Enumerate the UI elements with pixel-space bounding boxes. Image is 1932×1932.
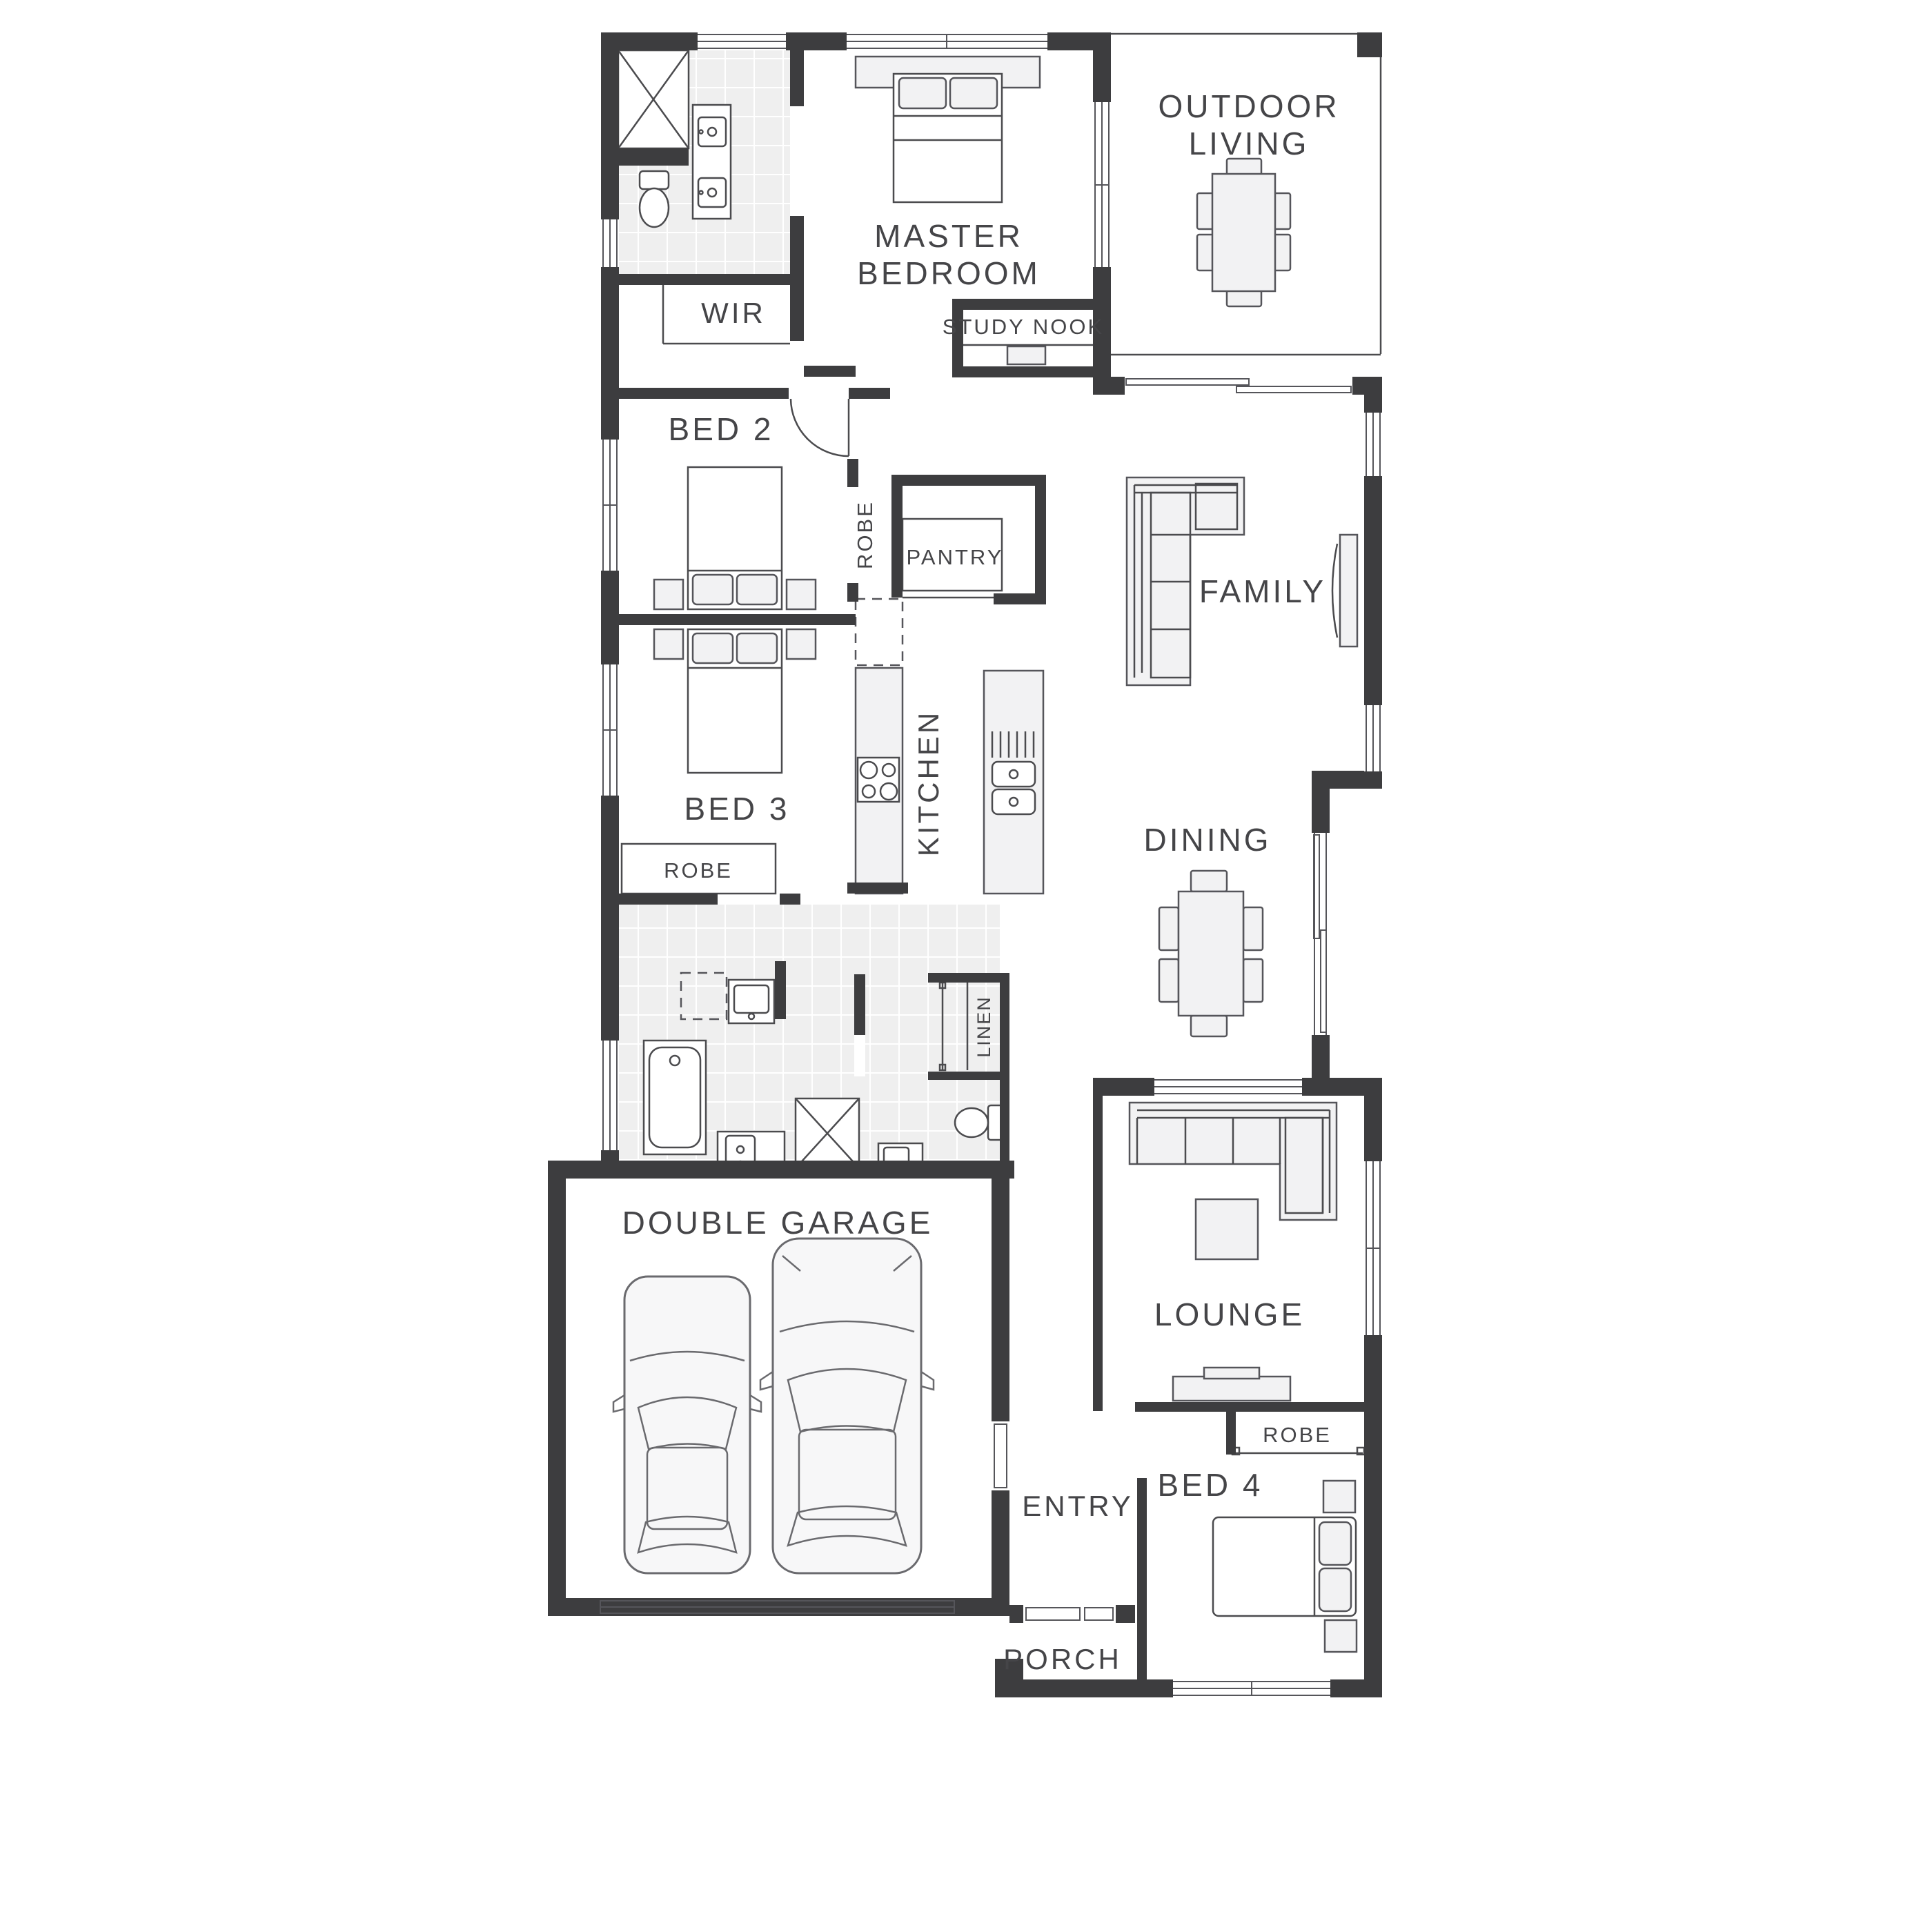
window (1173, 1679, 1330, 1697)
wall-segment (804, 366, 856, 377)
wall-segment (854, 974, 865, 1035)
sliding-door (1312, 833, 1330, 1035)
room-label-lounge: LOUNGE (1154, 1297, 1305, 1332)
wall-segment (952, 299, 1093, 310)
wall-segment (1226, 1412, 1236, 1455)
wall-segment (619, 148, 689, 166)
wall-segment (891, 475, 1046, 486)
bathroom-shower-icon (796, 1098, 859, 1168)
toilet-icon (640, 171, 669, 227)
wall-segment (548, 1161, 1014, 1179)
room-label-robe-bed3: ROBE (664, 858, 733, 883)
window (1093, 102, 1111, 267)
room-label-bed3: BED 3 (684, 791, 790, 827)
window (601, 219, 619, 267)
sliding-door (1125, 377, 1352, 395)
bed4-bed-icon (1213, 1481, 1357, 1652)
bed2-bed-icon (654, 467, 816, 609)
room-label-bed4: BED 4 (1158, 1467, 1263, 1503)
wall-segment (891, 475, 903, 598)
room-label-kitchen: KITCHEN (912, 710, 945, 856)
room-label-family: FAMILY (1199, 573, 1326, 609)
window (1364, 413, 1382, 476)
wall-segment (1357, 32, 1382, 57)
island-bench-sink-icon (984, 671, 1043, 894)
car-icon (613, 1276, 761, 1573)
wall-segment (601, 614, 856, 625)
room-label-wir: WIR (701, 297, 766, 329)
window (601, 664, 619, 796)
window (601, 1041, 619, 1150)
room-label-robe-bed2: ROBE (853, 500, 877, 569)
floor-plan-drawing: OUTDOOR LIVING MASTER BEDROOM WIR STUDY … (0, 0, 1932, 1932)
garage-internal-door (992, 1421, 1009, 1490)
room-label-entry: ENTRY (1022, 1490, 1134, 1522)
room-label-linen: LINEN (974, 996, 994, 1058)
wall-segment (1137, 1478, 1147, 1679)
wall-segment (847, 883, 908, 894)
wall-segment (849, 388, 890, 399)
shower-icon (618, 50, 689, 148)
door-opening (789, 388, 849, 399)
wall-segment (928, 1072, 1004, 1080)
study-nook-desk-icon (963, 345, 1093, 364)
window (601, 440, 619, 571)
window (1364, 1161, 1382, 1335)
lounge-ottoman-icon (1196, 1199, 1258, 1259)
room-label-double-garage: DOUBLE GARAGE (622, 1205, 934, 1241)
room-label-outdoor-living-2: LIVING (1189, 126, 1310, 161)
bed3-bed-icon (654, 629, 816, 773)
bathtub-icon (644, 1041, 706, 1154)
wall-segment (548, 1161, 566, 1616)
window (698, 32, 786, 50)
window (1154, 1078, 1302, 1096)
room-label-porch: PORCH (1003, 1643, 1122, 1675)
wc-toilet-icon (955, 1105, 1003, 1140)
wall-segment (1093, 1096, 1103, 1411)
floor-plan-page: OUTDOOR LIVING MASTER BEDROOM WIR STUDY … (0, 0, 1932, 1932)
wall-segment (1035, 475, 1046, 604)
wall-segment (952, 366, 1111, 377)
room-label-bed2: BED 2 (669, 411, 774, 447)
outdoor-dining-table-icon (1197, 159, 1290, 306)
room-label-master-2: BEDROOM (857, 255, 1041, 291)
wall-segment (601, 894, 718, 905)
wall-segment (780, 894, 800, 905)
front-door (1023, 1605, 1116, 1623)
room-label-pantry: PANTRY (907, 545, 1004, 569)
wall-segment (601, 388, 789, 399)
fridge-space (856, 599, 903, 665)
room-label-dining: DINING (1144, 822, 1272, 858)
room-label-master-1: MASTER (874, 218, 1023, 254)
wall-segment (847, 459, 858, 487)
room-label-study-nook: STUDY NOOK (943, 315, 1104, 339)
double-vanity-icon (693, 105, 731, 219)
wall-segment (1312, 771, 1382, 789)
wall-segment (601, 274, 804, 285)
wall-segment (992, 1179, 1009, 1616)
wall-segment (790, 32, 804, 106)
bed2-door-arc (791, 399, 849, 456)
wall-segment (775, 961, 786, 1019)
room-label-outdoor-living-1: OUTDOOR (1158, 88, 1339, 124)
wall-segment (1135, 1402, 1382, 1412)
car-icon (760, 1239, 934, 1573)
laundry-trough-icon (729, 980, 774, 1023)
family-tv-icon (1332, 535, 1357, 647)
wall-segment (994, 593, 1046, 604)
wall-segment (928, 973, 1009, 983)
door-opening (854, 1035, 865, 1076)
lounge-tv-cabinet-icon (1173, 1368, 1290, 1401)
window (1364, 705, 1382, 771)
bed4-robe-line (1232, 1448, 1364, 1455)
wall-segment (847, 583, 858, 602)
dining-table-icon (1159, 871, 1263, 1036)
master-bed-icon (856, 57, 1040, 202)
window (847, 32, 1047, 50)
wall-segment (601, 32, 619, 1179)
room-label-robe-bed4: ROBE (1263, 1423, 1332, 1447)
